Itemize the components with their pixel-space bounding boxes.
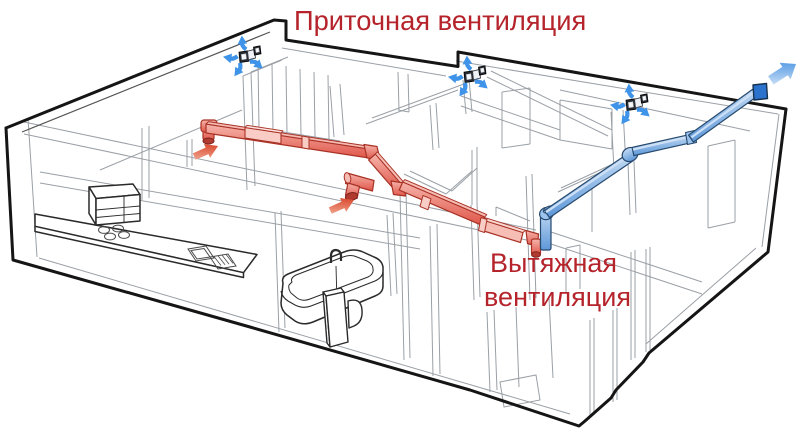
svg-text:Приточная вентиляция: Приточная вентиляция bbox=[294, 5, 586, 36]
svg-text:Вытяжная: Вытяжная bbox=[490, 248, 617, 278]
svg-text:вентиляция: вентиляция bbox=[484, 282, 631, 312]
